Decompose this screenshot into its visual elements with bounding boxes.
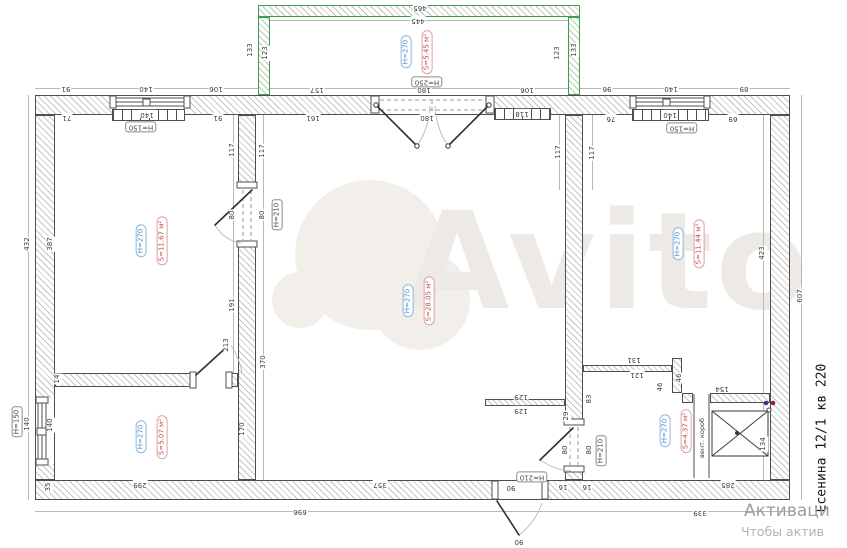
room-area-label-room-right: S=11.44 м² xyxy=(694,220,705,269)
dimension-label: 157 xyxy=(309,85,324,93)
dimension-label: 696 xyxy=(292,507,307,515)
room-height-label-room-bottom-right: H=270 xyxy=(660,415,671,448)
dimension-label: 339 xyxy=(692,508,707,516)
dimension-label: 96 xyxy=(602,84,613,92)
dimension-label: 129 xyxy=(513,406,528,414)
dimension-label: 80 xyxy=(259,210,267,221)
dimension-label: 357 xyxy=(372,480,387,488)
dimension-label: 117 xyxy=(589,145,597,160)
dimension-label: 285 xyxy=(720,480,735,488)
dimension-label: 131 xyxy=(626,355,641,363)
room-area-label-room-left: S=11.67 м² xyxy=(157,217,168,266)
dimension-label: 90 xyxy=(506,483,517,491)
dimension-label: 370 xyxy=(260,354,268,369)
room-height-label-balcony: H=270 xyxy=(401,36,412,69)
activation-watermark-line1: Активаци xyxy=(744,501,830,521)
dimension-label: 387 xyxy=(47,236,55,251)
height-note-label: H=150 xyxy=(126,122,157,133)
dimension-label: 80 xyxy=(562,445,570,456)
dimension-label: 423 xyxy=(759,245,767,260)
dimension-label: 140 xyxy=(662,110,677,118)
dimension-label: 117 xyxy=(555,144,563,159)
dimension-label: 154 xyxy=(714,384,729,392)
dimension-label: 140 xyxy=(139,110,154,118)
room-area-label-room-bottom-left: S=5.07 м² xyxy=(157,415,168,459)
dimension-label: 133 xyxy=(571,42,579,57)
dimension-label: 35 xyxy=(45,482,53,493)
dimension-label: 121 xyxy=(629,370,644,378)
room-height-label-room-bottom-left: H=270 xyxy=(136,421,147,454)
height-note-label: H=250 xyxy=(412,77,443,88)
dimension-label: 71 xyxy=(62,113,73,121)
dimension-label: 140 xyxy=(24,416,32,431)
address-label: Есенина 12/1 кв 220 xyxy=(815,364,830,513)
dimension-label: 140 xyxy=(663,84,678,92)
height-note-label: H=210 xyxy=(272,200,283,231)
dimension-label: 16 xyxy=(558,482,569,490)
riser-dot-blue xyxy=(764,401,769,406)
vent-duct-label: вент. короб xyxy=(698,418,706,458)
dimension-label: 83 xyxy=(586,394,594,405)
dimension-label: 117 xyxy=(229,142,237,157)
dimension-label: 129 xyxy=(513,392,528,400)
dimension-label: 299 xyxy=(132,480,147,488)
dimension-label: 106 xyxy=(208,84,223,92)
activation-watermark-line2: Чтобы актив xyxy=(741,524,824,539)
dimension-label: 445 xyxy=(410,16,425,24)
dimension-label: 80 xyxy=(586,445,594,456)
dimension-label: 16 xyxy=(582,482,593,490)
room-area-label-balcony: S=5.45 м² xyxy=(422,30,433,74)
dimension-label: 191 xyxy=(229,297,237,312)
dimension-label: 29 xyxy=(563,411,571,422)
dimension-label: 117 xyxy=(259,143,267,158)
dimension-label: 140 xyxy=(138,84,153,92)
dimension-label: 14 xyxy=(54,374,62,385)
dimension-label: 607 xyxy=(797,288,805,303)
dimension-label: 123 xyxy=(554,45,562,60)
dimension-label: 123 xyxy=(262,45,270,60)
dimension-label: 170 xyxy=(239,421,247,436)
dimension-label: 134 xyxy=(760,436,768,451)
room-height-label-room-center: H=270 xyxy=(403,285,414,318)
dimension-label: 161 xyxy=(305,113,320,121)
height-note-label: H=150 xyxy=(12,407,23,438)
height-note-label: H=210 xyxy=(517,472,548,483)
dimension-label: 465 xyxy=(412,3,427,11)
dimension-label: 106 xyxy=(519,85,534,93)
floor-plan-image: Avito xyxy=(0,0,847,548)
room-area-label-room-center: S=28.05 м² xyxy=(424,277,435,326)
dimension-label: 133 xyxy=(247,42,255,57)
height-note-label: H=210 xyxy=(596,436,607,467)
dimension-label: 91 xyxy=(61,84,72,92)
dimension-label: 89 xyxy=(739,84,750,92)
dimension-label: 46 xyxy=(657,382,665,393)
dimension-label: 432 xyxy=(24,236,32,251)
dimension-label: 118 xyxy=(514,109,529,117)
riser-dot-red xyxy=(771,401,776,406)
dimension-label: 90 xyxy=(514,537,525,545)
dimension-label: 69 xyxy=(728,114,739,122)
room-height-label-room-right: H=270 xyxy=(673,228,684,261)
dimension-label: 46 xyxy=(676,373,684,384)
room-height-label-room-left: H=270 xyxy=(136,225,147,258)
dimension-label: 180 xyxy=(419,113,434,121)
height-note-label: H=150 xyxy=(667,123,698,134)
dimension-label: 140 xyxy=(47,417,55,432)
room-area-label-room-bottom-right: S=4.37 м² xyxy=(681,409,692,453)
dimension-label: 91 xyxy=(213,113,224,121)
dimension-label: 80 xyxy=(229,210,237,221)
dimension-label: 76 xyxy=(606,114,617,122)
dimension-label: 213 xyxy=(223,337,231,352)
